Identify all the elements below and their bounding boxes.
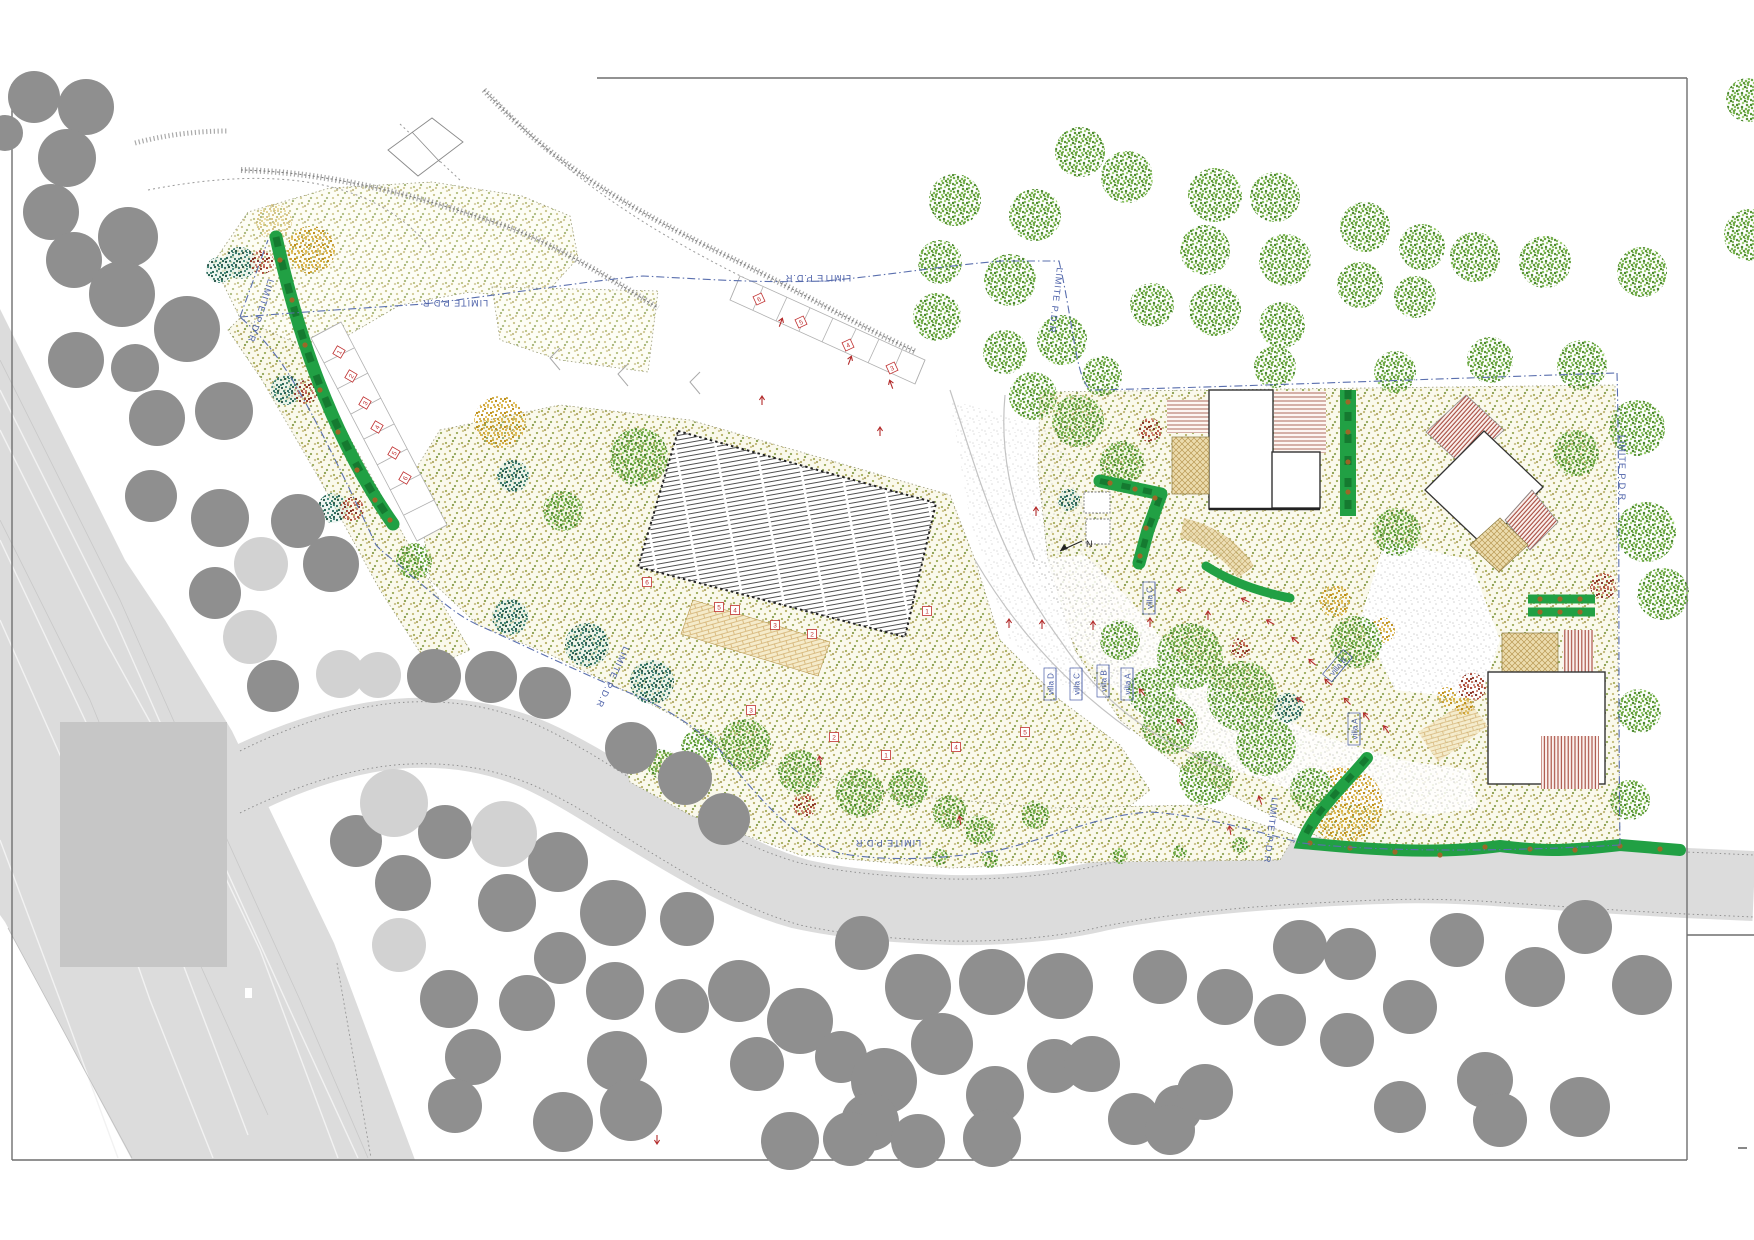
- svg-text:villa D: villa D: [1047, 673, 1056, 695]
- svg-text:LIMITE P.D.R: LIMITE P.D.R: [855, 838, 921, 848]
- svg-text:2: 2: [810, 632, 814, 639]
- svg-text:LIMITE P.D.R: LIMITE P.D.R: [1617, 435, 1627, 501]
- svg-text:villa B: villa B: [1100, 670, 1109, 691]
- svg-text:5: 5: [1023, 730, 1027, 737]
- svg-text:4: 4: [954, 745, 958, 752]
- svg-text:LIMITE P.D.R: LIMITE P.D.R: [785, 273, 851, 283]
- svg-text:3: 3: [773, 623, 777, 630]
- svg-text:villa A: villa A: [1124, 673, 1133, 695]
- svg-text:1: 1: [884, 753, 888, 760]
- svg-text:2: 2: [832, 735, 836, 742]
- svg-text:villa A: villa A: [1351, 718, 1360, 740]
- svg-text:4: 4: [733, 608, 737, 615]
- svg-text:6: 6: [645, 580, 649, 587]
- svg-text:N: N: [1086, 539, 1093, 549]
- svg-text:5: 5: [717, 605, 721, 612]
- svg-text:villa C: villa C: [1073, 673, 1082, 695]
- svg-text:3: 3: [749, 708, 753, 715]
- svg-text:villa C: villa C: [1146, 587, 1155, 609]
- svg-text:1: 1: [925, 609, 929, 616]
- svg-text:LIMITE P.D.R: LIMITE P.D.R: [422, 298, 488, 308]
